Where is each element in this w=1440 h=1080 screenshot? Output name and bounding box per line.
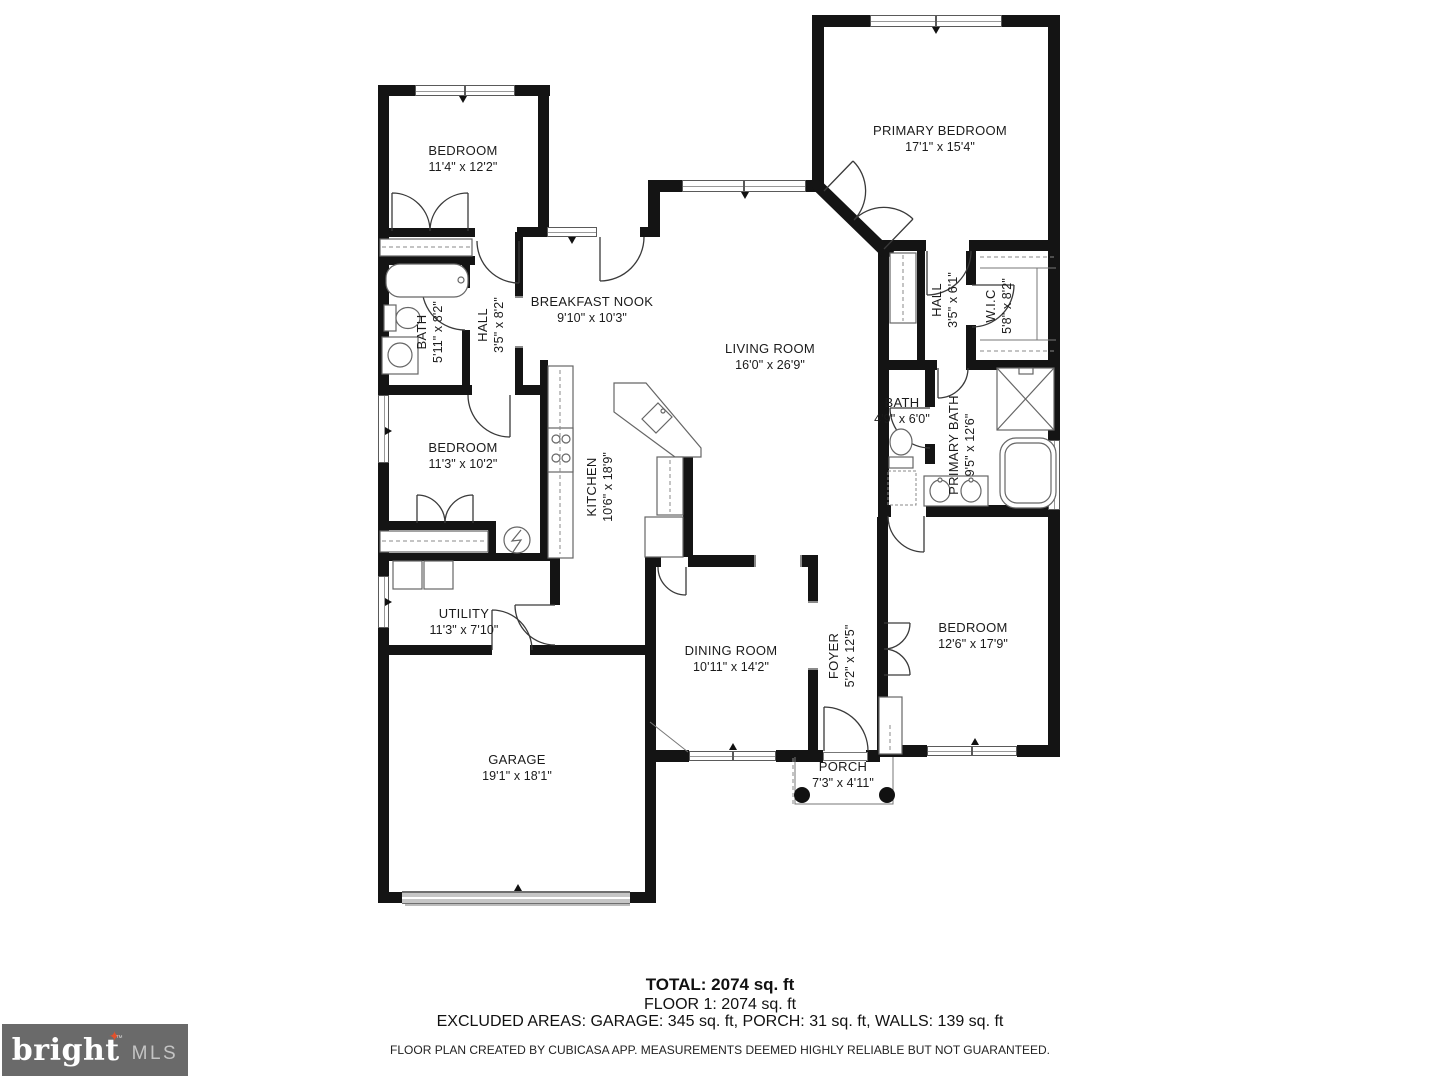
plan-element: HALL bbox=[474, 297, 491, 353]
plan-element: 11'3" x 10'2" bbox=[428, 456, 497, 473]
room-label-bedroom-right: BEDROOM12'6" x 17'9" bbox=[938, 619, 1008, 653]
washer bbox=[393, 561, 422, 589]
toilet-tank bbox=[384, 305, 396, 331]
shower-head bbox=[1019, 368, 1033, 374]
room-label-hall-right: HALL3'5" x 6'1" bbox=[928, 272, 962, 328]
plan-element: PORCH bbox=[812, 758, 874, 775]
plan-element: DINING ROOM bbox=[685, 642, 778, 659]
diagonal-wall bbox=[816, 184, 890, 256]
plan-element: 9'5" x 12'6" bbox=[962, 395, 979, 495]
room-label-bedroom-top-left: BEDROOM11'4" x 12'2" bbox=[428, 142, 497, 176]
plan-element: PRIMARY BEDROOM bbox=[873, 122, 1007, 139]
dryer bbox=[424, 561, 453, 589]
room-label-foyer: FOYER5'2" x 12'5" bbox=[825, 625, 859, 688]
plan-element: 4'9" x 6'0" bbox=[874, 411, 930, 428]
plan-element: 7'3" x 4'11" bbox=[812, 775, 874, 792]
counter bbox=[657, 457, 683, 515]
room-label-primary-bedroom: PRIMARY BEDROOM17'1" x 15'4" bbox=[873, 122, 1007, 156]
plan-element: LIVING ROOM bbox=[725, 340, 815, 357]
floor-area-text: FLOOR 1: 2074 sq. ft bbox=[0, 996, 1440, 1014]
doors-and-fixtures-layer bbox=[0, 0, 1440, 1080]
plan-element: W.I.C bbox=[982, 278, 999, 334]
room-label-bedroom-left: BEDROOM11'3" x 10'2" bbox=[428, 439, 497, 473]
plan-element: BEDROOM bbox=[938, 619, 1008, 636]
plan-element: 3'5" x 6'1" bbox=[945, 272, 962, 328]
room-label-porch: PORCH7'3" x 4'11" bbox=[812, 758, 874, 792]
floor-plan: BEDROOM11'4" x 12'2" PRIMARY BEDROOM17'1… bbox=[0, 0, 1440, 1080]
ceiling-break-line bbox=[650, 722, 688, 752]
plan-element: 19'1" x 18'1" bbox=[482, 768, 552, 785]
room-label-dining-room: DINING ROOM10'11" x 14'2" bbox=[685, 642, 778, 676]
plan-element: 12'6" x 17'9" bbox=[938, 636, 1008, 653]
plan-element: GARAGE bbox=[482, 751, 552, 768]
plan-element: 16'0" x 26'9" bbox=[725, 357, 815, 374]
plan-element: BREAKFAST NOOK bbox=[531, 293, 653, 310]
room-label-utility: UTILITY11'3" x 7'10" bbox=[430, 605, 499, 639]
plan-element: HALL bbox=[928, 272, 945, 328]
room-label-living-room: LIVING ROOM16'0" x 26'9" bbox=[725, 340, 815, 374]
plan-element: 9'10" x 10'3" bbox=[531, 310, 653, 327]
excluded-areas-text: EXCLUDED AREAS: GARAGE: 345 sq. ft, PORC… bbox=[0, 1013, 1440, 1031]
plan-element: 3'5" x 8'2" bbox=[491, 297, 508, 353]
plan-element: BATH bbox=[874, 394, 930, 411]
room-label-wic: W.I.C5'8" x 8'2" bbox=[982, 278, 1016, 334]
bathtub-primary bbox=[1000, 438, 1056, 508]
plan-element: 5'8" x 8'2" bbox=[999, 278, 1016, 334]
plan-element: BATH bbox=[413, 301, 430, 363]
plan-element: 5'11" x 8'2" bbox=[430, 301, 447, 363]
bathtub-left bbox=[386, 264, 468, 297]
total-area-text: TOTAL: 2074 sq. ft bbox=[0, 975, 1440, 995]
plan-element: FOYER bbox=[825, 625, 842, 688]
disclaimer-text: FLOOR PLAN CREATED BY CUBICASA APP. MEAS… bbox=[0, 1043, 1440, 1057]
plan-element: BEDROOM bbox=[428, 142, 497, 159]
room-label-bath-left: BATH5'11" x 8'2" bbox=[413, 301, 447, 363]
toilet-right bbox=[890, 429, 912, 455]
room-label-kitchen: KITCHEN10'6" x 18'9" bbox=[583, 452, 617, 522]
room-label-garage: GARAGE19'1" x 18'1" bbox=[482, 751, 552, 785]
plan-element: 17'1" x 15'4" bbox=[873, 139, 1007, 156]
logo-brand-text: bright bbox=[12, 1033, 120, 1068]
refrigerator bbox=[645, 517, 683, 557]
plan-element: PRIMARY BATH bbox=[945, 395, 962, 495]
logo-mls-text: MLS bbox=[132, 1043, 179, 1065]
plan-element: 5'2" x 12'5" bbox=[842, 625, 859, 688]
plan-element: 11'4" x 12'2" bbox=[428, 159, 497, 176]
sink-left bbox=[388, 343, 412, 367]
plan-element: BEDROOM bbox=[428, 439, 497, 456]
brightmls-logo: bright ✦ ™ MLS bbox=[2, 1024, 188, 1076]
plan-element: 10'6" x 18'9" bbox=[600, 452, 617, 522]
plan-element: 11'3" x 7'10" bbox=[430, 622, 499, 639]
plan-element: UTILITY bbox=[430, 605, 499, 622]
plan-element: KITCHEN bbox=[583, 452, 600, 522]
room-label-breakfast-nook: BREAKFAST NOOK9'10" x 10'3" bbox=[531, 293, 653, 327]
logo-trademark: ™ bbox=[116, 1035, 123, 1042]
plan-element: 10'11" x 14'2" bbox=[685, 659, 778, 676]
room-label-bath-right: BATH4'9" x 6'0" bbox=[874, 394, 930, 428]
faucet bbox=[458, 277, 464, 283]
room-label-hall-left: HALL3'5" x 8'2" bbox=[474, 297, 508, 353]
room-label-primary-bath: PRIMARY BATH9'5" x 12'6" bbox=[945, 395, 979, 495]
